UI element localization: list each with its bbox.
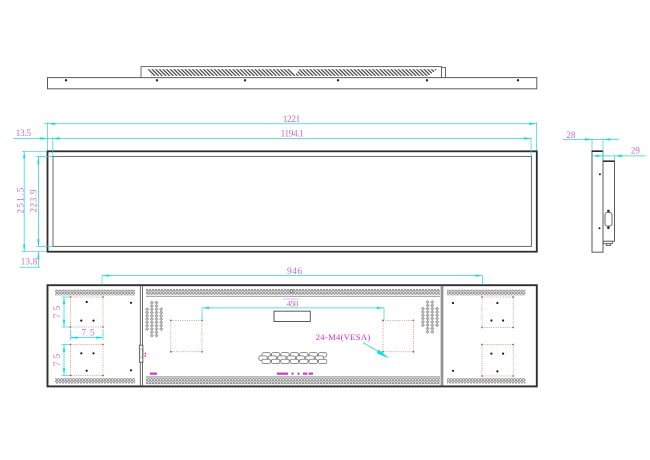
svg-text:251.5: 251.5 <box>15 187 25 214</box>
svg-text:450: 450 <box>287 299 299 309</box>
svg-text:28: 28 <box>567 130 577 140</box>
svg-text:946: 946 <box>287 267 302 277</box>
svg-text:13.5: 13.5 <box>16 128 32 138</box>
svg-text:13.8: 13.8 <box>21 257 38 267</box>
svg-text:24-M4(VESA): 24-M4(VESA) <box>316 332 371 342</box>
svg-text:223.9: 223.9 <box>29 189 39 213</box>
svg-text:1221: 1221 <box>283 115 301 125</box>
svg-text:1194.1: 1194.1 <box>281 130 305 140</box>
svg-text:29: 29 <box>631 146 641 156</box>
